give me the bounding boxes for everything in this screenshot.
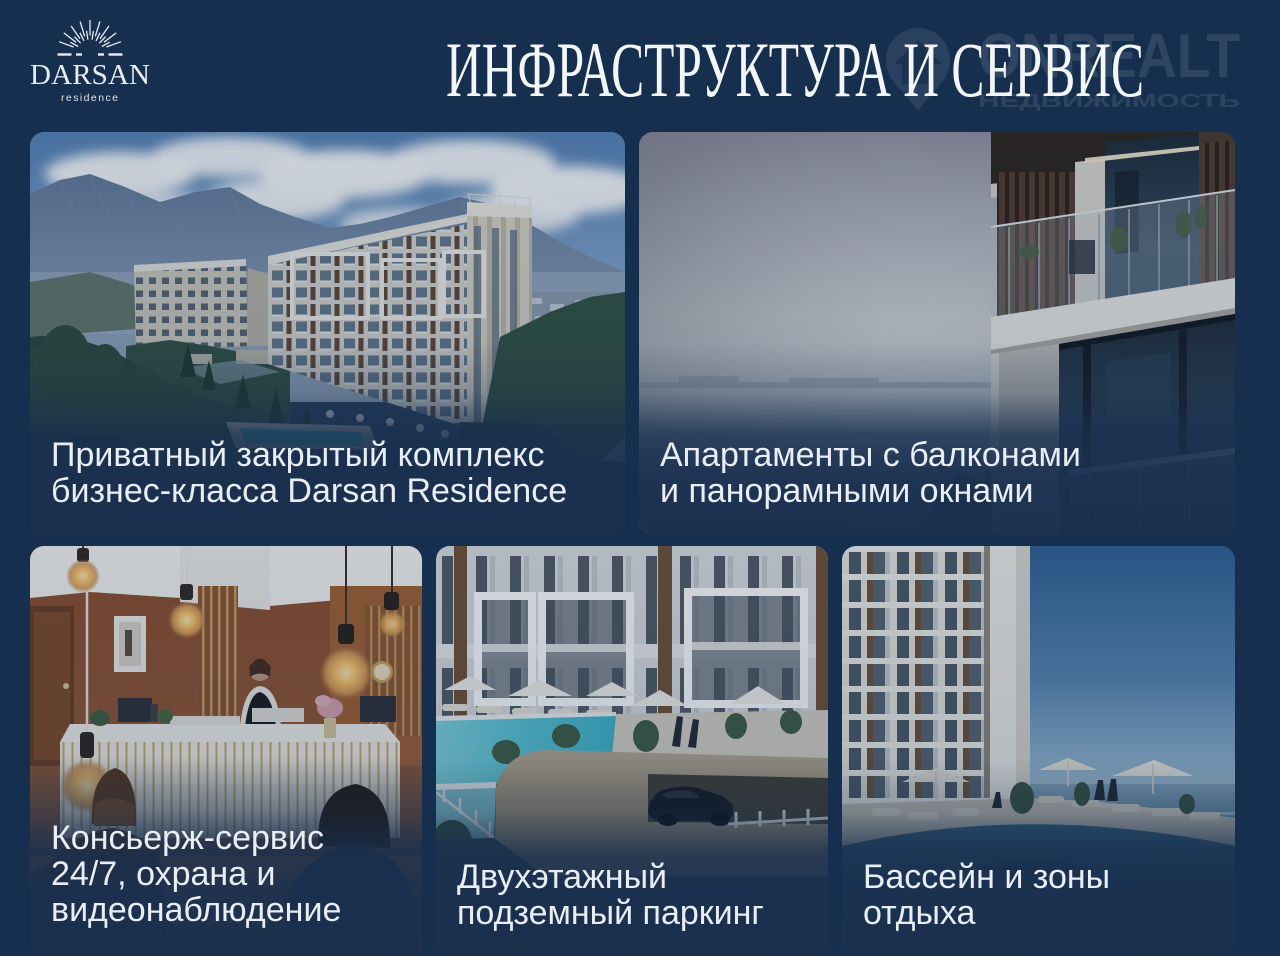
svg-text:DARSAN: DARSAN bbox=[30, 59, 150, 91]
svg-text:residence: residence bbox=[61, 92, 118, 104]
svg-text:ИНФРАСТРУКТУРА И СЕРВИС: ИНФРАСТРУКТУРА И СЕРВИС bbox=[446, 26, 1144, 113]
